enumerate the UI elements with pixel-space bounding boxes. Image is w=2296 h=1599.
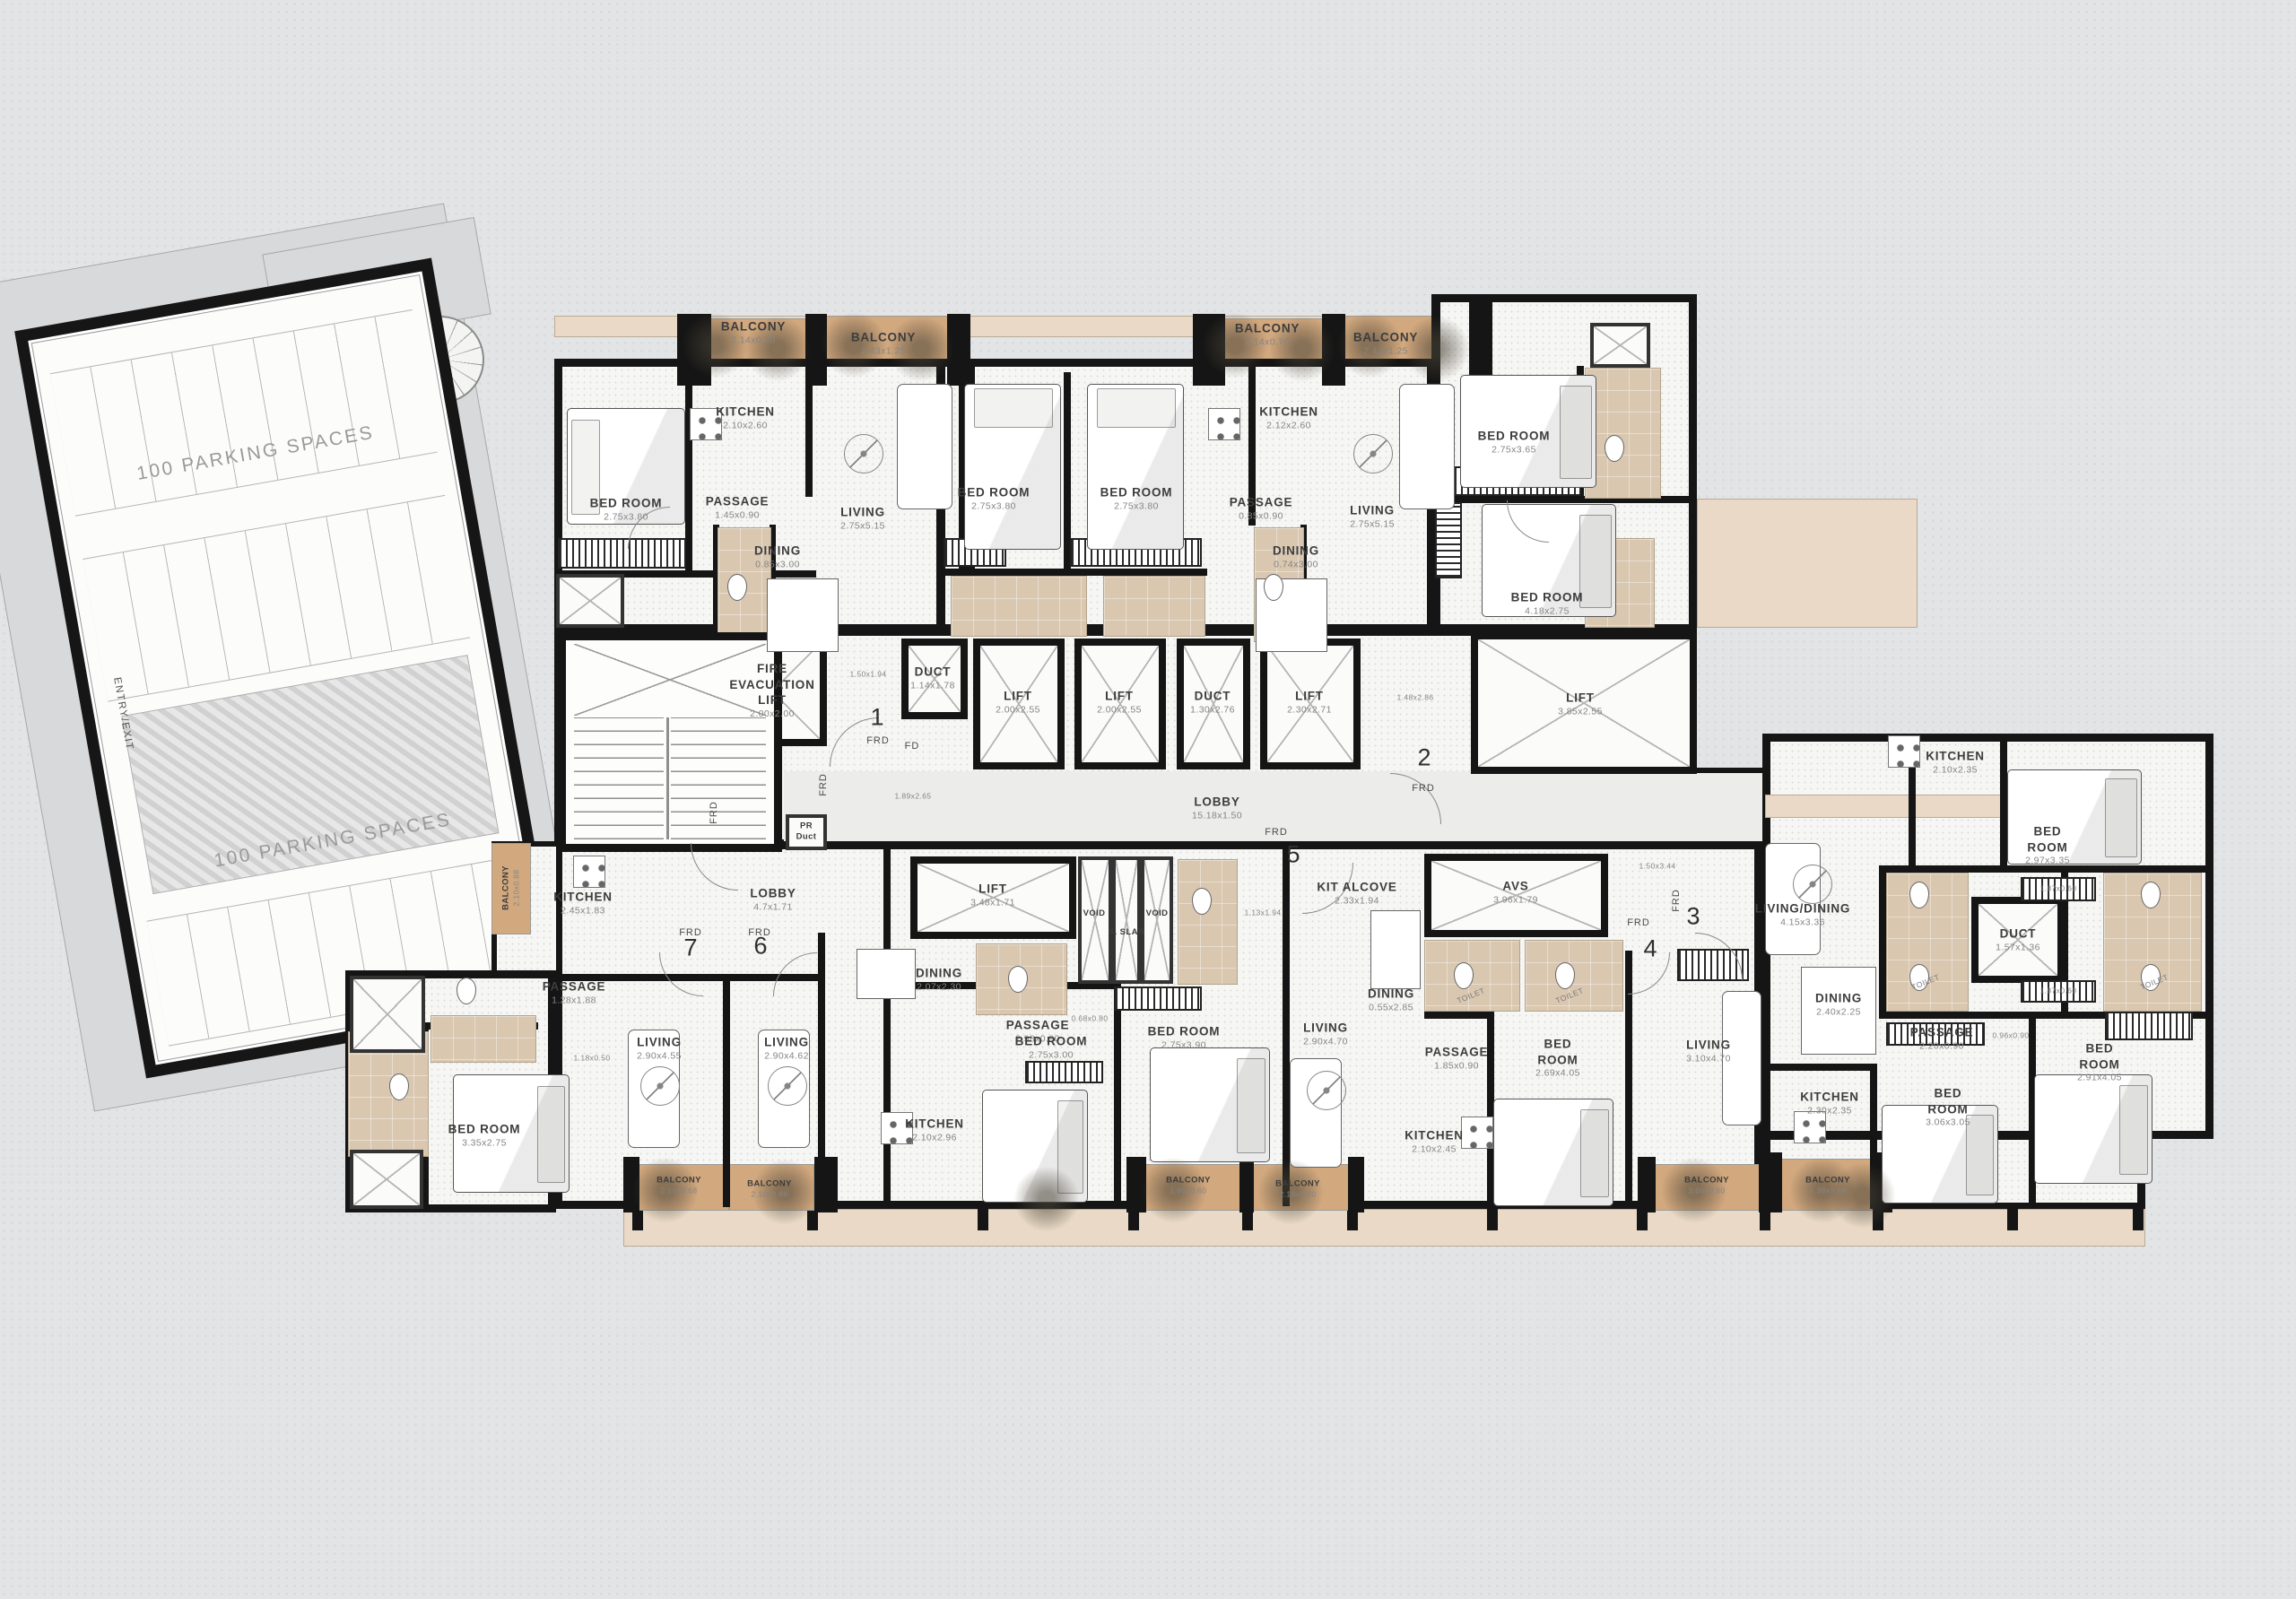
room-dims: 2.00x2.55	[996, 704, 1040, 717]
room-label: LIFT2.00x2.55	[996, 688, 1040, 716]
dining-table	[1370, 910, 1421, 989]
room-dims: 2.90x4.55	[637, 1050, 682, 1063]
ceiling-fan-icon	[1353, 434, 1393, 474]
room-label: BED ROOM2.69x4.05	[1526, 1037, 1590, 1081]
parking-stalls	[50, 309, 438, 517]
wall-pier	[1126, 1157, 1146, 1212]
room-dims: 1.87x0.60	[2040, 986, 2077, 995]
room-dims: 2.43x1.25	[851, 345, 916, 358]
room-label: LIVING2.90x4.62	[764, 1034, 809, 1062]
shower	[350, 1150, 423, 1209]
frd-label: FRD	[1627, 917, 1650, 928]
room-dims: 0.85x0.90	[1230, 510, 1293, 523]
wall	[883, 847, 891, 1206]
room-name: DINING	[1273, 543, 1319, 559]
room-name: BALCONY	[1684, 1175, 1729, 1186]
wall-pier	[1193, 314, 1225, 386]
room-dims: 3.96x1.79	[1493, 894, 1538, 907]
room-label: S. SLAB	[1109, 927, 1144, 938]
room-name: BALCONY	[1275, 1178, 1320, 1189]
stair-center-line	[666, 717, 669, 839]
frd-label: FRD	[1265, 827, 1288, 838]
room-name: BED ROOM	[1100, 484, 1173, 500]
room-dims: 3.48x1.71	[970, 897, 1015, 909]
bed	[2034, 1074, 2152, 1184]
room-dims: 2.10x0.88	[512, 865, 522, 910]
room-label: VOID	[1146, 908, 1169, 919]
room-label: LIFT2.30x2.71	[1287, 688, 1332, 716]
room-dims: 15.18x1.50	[1192, 810, 1242, 822]
room-name: BED ROOM	[448, 1121, 521, 1137]
room-name: LOBBY	[750, 885, 796, 901]
room-dims: 2.90x4.70	[1303, 1036, 1348, 1048]
room-name: BED ROOM	[1148, 1023, 1221, 1039]
wall	[944, 569, 1207, 576]
room-dims: 2.33x1.94	[1317, 895, 1396, 908]
dim-label: 1.50x1.94	[850, 669, 887, 679]
room-label: BALCONY1.38x0.68	[1805, 1175, 1850, 1195]
room-dims: 2.10x0.68	[657, 1186, 701, 1196]
room-name: BED ROOM	[1015, 1033, 1088, 1049]
room-name: BALCONY	[851, 329, 916, 345]
pr-duct-label: PRDuct	[796, 821, 817, 844]
room-name: DUCT	[910, 664, 955, 680]
wall	[1870, 1067, 1877, 1209]
window-tick	[1487, 1207, 1498, 1230]
wall	[2000, 737, 2007, 870]
wall	[1283, 847, 1290, 1206]
wall	[805, 362, 813, 497]
room-label: KITCHEN2.10x2.96	[905, 1116, 964, 1143]
room-name: BALCONY	[747, 1178, 792, 1189]
room-name: FIRE EVACUATION LIFT	[722, 661, 822, 708]
room-dims: 2.75x3.65	[1478, 444, 1551, 456]
room-name: PASSAGE	[706, 493, 770, 509]
room-name: DINING	[1368, 986, 1414, 1002]
room-label: DINING0.55x2.85	[1368, 986, 1414, 1013]
room-name: KITCHEN	[1926, 748, 1985, 764]
slab-shaft	[1112, 856, 1141, 984]
room-label: KITCHEN2.30x2.35	[1800, 1089, 1859, 1117]
room-dims: 2.07x2.30	[916, 981, 962, 994]
room-label: BALCONY2.14x0.70	[1235, 320, 1300, 348]
dim-label: 1.18x0.50	[574, 1053, 611, 1063]
wall	[1762, 1064, 1877, 1071]
wall-pier	[677, 314, 711, 386]
room-dims: 2.75x5.15	[1350, 518, 1395, 531]
room-dims: 1.57x1.36	[1996, 942, 2040, 954]
room-name: DINING	[916, 965, 962, 981]
bed	[1087, 384, 1184, 550]
room-dims: 2.14x0.70	[721, 335, 786, 347]
room-name: LIVING	[764, 1034, 809, 1050]
ceiling-fan-icon	[768, 1066, 807, 1106]
room-name: KIT ALCOVE	[1317, 879, 1396, 895]
room-label: BED ROOM3.06x3.05	[1916, 1086, 1980, 1130]
frd-label: FRD	[679, 927, 702, 938]
wardrobe	[1114, 986, 1202, 1011]
room-name: KITCHEN	[905, 1116, 964, 1132]
room-name: LIVING	[1686, 1037, 1731, 1053]
room-label: AVS3.96x1.79	[1493, 878, 1538, 906]
room-label: BALCONY3.08x0.60	[1684, 1175, 1729, 1195]
room-label: LIVING2.75x5.15	[1350, 502, 1395, 530]
room-name: AVS	[1493, 878, 1538, 894]
room-name: LIVING	[840, 504, 885, 520]
room-label: BALCONY1.95x0.60	[1166, 1175, 1211, 1195]
room-label: PASSAGE1.28x1.88	[543, 978, 606, 1006]
room-name: S. SLAB	[1109, 927, 1144, 938]
room-dims: 2.10x2.96	[905, 1132, 964, 1144]
stove-icon	[1208, 408, 1240, 440]
room-name: LIFT	[1097, 688, 1142, 704]
room-label: BALCONY2.43x1.25	[1353, 329, 1418, 357]
room-label: KITCHEN2.12x2.60	[1259, 404, 1318, 431]
fd-label: FD	[905, 741, 920, 752]
room-dims: 0.74x3.00	[1273, 559, 1319, 571]
room-label: BALCONY2.10x0.88	[747, 1178, 792, 1199]
room-label: LIVING3.10x4.70	[1686, 1037, 1731, 1065]
room-label: PASSAGE1.85x0.90	[1425, 1044, 1489, 1072]
room-dims: 2.10x2.45	[1405, 1143, 1464, 1156]
room-dims: 3.35x2.75	[448, 1137, 521, 1150]
room-label: BED ROOM3.35x2.75	[448, 1121, 521, 1149]
room-name: KITCHEN	[716, 404, 775, 420]
room-label: DINING0.85x3.00	[754, 543, 801, 570]
room-label: DINING2.07x2.30	[916, 965, 962, 993]
wall-pier	[1469, 296, 1492, 384]
room-dims: 2.12x2.60	[1259, 420, 1318, 432]
room-dims: 2.75x5.15	[840, 520, 885, 533]
room-dims: 2.00x2.00	[722, 708, 822, 721]
room-dims: 2.00x2.55	[1097, 704, 1142, 717]
wardrobe	[2105, 1012, 2193, 1040]
room-label: DUCT1.57x1.36	[1996, 926, 2040, 953]
room-label: LIFT3.85x2.55	[1558, 690, 1603, 717]
wall-pier	[623, 1157, 639, 1212]
room-name: LIFT	[1287, 688, 1332, 704]
room-label: DINING2.40x2.25	[1815, 990, 1862, 1018]
room-name: BED ROOM	[1511, 589, 1584, 605]
wardrobe	[1025, 1061, 1103, 1083]
room-name: LIVING	[1350, 502, 1395, 518]
wall-pier	[1239, 1157, 1254, 1212]
room-label: BED ROOM2.97x3.35	[2015, 824, 2080, 868]
room-dims: 2.10x2.35	[1926, 764, 1985, 777]
room-dims: 2.10x0.60	[1275, 1190, 1320, 1200]
room-label: KITCHEN2.10x2.35	[1926, 748, 1985, 776]
unit-number-3: 3	[1686, 903, 1700, 931]
room-label: PASSAGE1.45x0.90	[706, 493, 770, 521]
room-name: VOID	[1146, 908, 1169, 919]
frd-label: FRD	[1671, 889, 1682, 912]
room-dims: 1.45x0.90	[706, 509, 770, 522]
room-dims: 1.13x1.94	[1245, 908, 1282, 917]
room-label: LOBBY4.7x1.71	[750, 885, 796, 913]
room-name: BALCONY	[721, 318, 786, 335]
room-dims: 2.90x4.62	[764, 1050, 809, 1063]
stove-icon	[1888, 735, 1920, 768]
ceiling-fan-icon	[1307, 1071, 1346, 1110]
room-label: DUCT1.30x2.76	[1190, 688, 1235, 716]
room-name: PASSAGE	[1425, 1044, 1489, 1060]
room-dims: 2.69x4.05	[1526, 1068, 1590, 1081]
ceiling-fan-icon	[640, 1066, 680, 1106]
room-label: DUCT1.14x1.78	[910, 664, 955, 691]
room-name: DUCT	[1190, 688, 1235, 704]
room-name: BALCONY	[1166, 1175, 1211, 1186]
room-dims: 2.40x2.25	[1815, 1006, 1862, 1019]
bed	[964, 384, 1061, 550]
window-tick	[2133, 1207, 2144, 1230]
room-dims: 1.50x3.44	[1639, 861, 1676, 871]
room-name: BALCONY	[657, 1175, 701, 1186]
room-name: BED ROOM	[2067, 1041, 2132, 1073]
room-label: KIT ALCOVE2.33x1.94	[1317, 879, 1396, 907]
room-name: BED ROOM	[958, 484, 1031, 500]
room-label: FIRE EVACUATION LIFT2.00x2.00	[722, 661, 822, 720]
bathroom	[430, 1015, 536, 1063]
room-label: BALCONY2.10x0.60	[1275, 1178, 1320, 1199]
room-name: BALCONY	[500, 865, 511, 910]
wall	[685, 362, 692, 574]
pr-duct-line2: Duct	[796, 832, 817, 843]
room-dims: 2.91x4.05	[2067, 1073, 2132, 1085]
shower	[350, 976, 425, 1053]
void-shaft	[1078, 856, 1112, 984]
room-label: BED ROOM2.75x3.80	[1100, 484, 1173, 512]
room-label: KITCHEN2.10x2.45	[1405, 1127, 1464, 1155]
room-name: LIFT	[970, 881, 1015, 897]
frd-label: FRD	[866, 735, 890, 746]
dim-label: 0.68x0.80	[1072, 1013, 1109, 1023]
room-label: BED ROOM2.75x3.00	[1015, 1033, 1088, 1061]
room-name: BED ROOM	[590, 495, 663, 511]
room-dims: 3.10x4.70	[1686, 1053, 1731, 1065]
sofa	[897, 384, 952, 509]
room-dims: 0.96x0.90	[1993, 1030, 2030, 1040]
room-dims: 1.89x2.65	[895, 791, 932, 801]
terrace-strip	[623, 1209, 2145, 1247]
room-label: BALCONY2.43x1.25	[851, 329, 916, 357]
dim-label: 1.48x2.86	[1397, 692, 1434, 702]
room-label: BALCONY2.10x0.68	[657, 1175, 701, 1195]
wardrobe	[1435, 502, 1462, 578]
wall-pier	[1759, 1152, 1782, 1212]
room-dims: 4.18x2.75	[1511, 605, 1584, 618]
dim-label: 1.87x0.60	[2040, 986, 2077, 995]
room-name: DUCT	[1996, 926, 2040, 942]
bed	[1150, 1047, 1270, 1162]
room-label: DINING0.74x3.00	[1273, 543, 1319, 570]
room-name: KITCHEN	[1259, 404, 1318, 420]
room-dims: 1.14x1.78	[910, 680, 955, 692]
room-dims: 2.45x1.83	[553, 905, 613, 917]
room-label: LIFT3.48x1.71	[970, 881, 1015, 908]
room-name: BALCONY	[1353, 329, 1418, 345]
bed	[1493, 1099, 1613, 1206]
unit-number-5: 5	[1286, 841, 1300, 869]
room-label: BED ROOM2.75x3.90	[1148, 1023, 1221, 1051]
room-label: BED ROOM2.91x4.05	[2067, 1041, 2132, 1085]
ceiling-fan-icon	[844, 434, 883, 474]
room-name: BED ROOM	[2015, 824, 2080, 856]
east-deck	[1697, 499, 1918, 628]
room-name: LIVING	[637, 1034, 682, 1050]
shower	[556, 574, 624, 628]
room-dims: 1.95x0.60	[1166, 1186, 1211, 1196]
frd-label: FRD	[818, 773, 829, 796]
room-label: LIVING2.90x4.70	[1303, 1020, 1348, 1047]
room-dims: 3.85x2.55	[1558, 706, 1603, 718]
room-label: LIVING2.75x5.15	[840, 504, 885, 532]
room-name: VOID	[1083, 908, 1106, 919]
room-dims: 2.43x1.25	[1353, 345, 1418, 358]
room-label: KITCHEN2.10x2.60	[716, 404, 775, 431]
room-name: LIFT	[1558, 690, 1603, 706]
window-tick	[978, 1207, 988, 1230]
room-dims: 2.75x3.80	[590, 511, 663, 524]
room-label: BED ROOM4.18x2.75	[1511, 589, 1584, 617]
room-name: KITCHEN	[1800, 1089, 1859, 1105]
wall-pier	[1322, 314, 1345, 386]
room-name: LIVING/DINING	[1755, 900, 1850, 917]
room-dims: 1.28x1.88	[543, 995, 606, 1007]
room-label: BED ROOM2.75x3.65	[1478, 428, 1551, 456]
room-label: KITCHEN2.45x1.83	[553, 889, 613, 917]
room-dims: 4.15x3.36	[1755, 917, 1850, 929]
unit-number-2: 2	[1417, 744, 1431, 772]
room-name: BED ROOM	[1526, 1037, 1590, 1068]
room-dims: 2.30x2.71	[1287, 704, 1332, 717]
wall-pier	[1348, 1157, 1364, 1212]
room-label: LIVING2.90x4.55	[637, 1034, 682, 1062]
room-name: KITCHEN	[1405, 1127, 1464, 1143]
sofa	[1399, 384, 1455, 509]
unit-number-4: 4	[1643, 935, 1657, 963]
parking-cars	[121, 655, 499, 894]
bathroom	[1103, 576, 1205, 637]
room-label: LOBBY15.18x1.50	[1192, 794, 1242, 821]
room-dims: 1.50x1.94	[850, 669, 887, 679]
room-name: LIFT	[996, 688, 1040, 704]
room-dims: 2.30x2.35	[1800, 1105, 1859, 1117]
room-dims: 1.38x0.68	[1805, 1186, 1850, 1196]
room-label: VOID	[1083, 908, 1106, 919]
dining-table	[767, 578, 839, 652]
room-dims: 1.18x0.50	[574, 1053, 611, 1063]
stair-treads	[574, 717, 664, 839]
room-label: PASSAGE2.20x0.90	[1910, 1024, 1974, 1052]
room-name: PASSAGE	[543, 978, 606, 995]
room-name: PASSAGE	[1006, 1017, 1070, 1033]
frd-label: FRD	[709, 801, 719, 824]
room-dims: 0.55x2.85	[1368, 1002, 1414, 1014]
room-label: BALCONY2.14x0.70	[721, 318, 786, 346]
wall	[1424, 1012, 1494, 1019]
room-dims: 2.75x3.80	[958, 500, 1031, 513]
room-label: BED ROOM2.75x3.80	[958, 484, 1031, 512]
dim-label: 1.13x1.94	[1245, 908, 1282, 917]
pr-duct-line1: PR	[796, 821, 817, 832]
room-dims: 2.75x3.00	[1015, 1049, 1088, 1062]
wall-pier	[947, 314, 970, 386]
bathroom	[1178, 859, 1238, 985]
room-dims: 2.10x0.88	[747, 1190, 792, 1200]
room-name: LIVING	[1303, 1020, 1348, 1036]
room-dims: 2.97x3.35	[2015, 856, 2080, 868]
room-name: BED ROOM	[1478, 428, 1551, 444]
floor-plan-canvas: 100 PARKING SPACES 100 PARKING SPACES EN…	[0, 0, 2296, 1599]
room-name: DINING	[754, 543, 801, 559]
room-label: BED ROOM2.75x3.80	[590, 495, 663, 523]
room-dims: 1.48x2.86	[1397, 692, 1434, 702]
wall-pier	[1638, 1157, 1656, 1212]
bed	[982, 1090, 1088, 1203]
room-label: BALCONY2.10x0.88	[500, 865, 521, 910]
room-dims: 1.85x0.90	[1425, 1060, 1489, 1073]
room-dims: 2.75x3.90	[1148, 1039, 1221, 1052]
room-name: LOBBY	[1192, 794, 1242, 810]
unit-number-7: 7	[683, 934, 697, 962]
room-dims: 1.87x0.60	[2040, 883, 2077, 893]
unit-number-1: 1	[870, 704, 883, 732]
room-name: DINING	[1815, 990, 1862, 1006]
window-tick	[2007, 1207, 2018, 1230]
wall	[1879, 865, 1886, 1018]
stove-icon	[573, 856, 605, 888]
room-dims: 0.68x0.80	[1072, 1013, 1109, 1023]
dim-label: 1.87x0.60	[2040, 883, 2077, 893]
room-dims: 2.20x0.90	[1910, 1040, 1974, 1053]
room-name: PASSAGE	[1910, 1024, 1974, 1040]
room-dims: 1.30x2.76	[1190, 704, 1235, 717]
frd-label: FRD	[1412, 783, 1435, 794]
room-name: BALCONY	[1805, 1175, 1850, 1186]
room-dims: 4.7x1.71	[750, 901, 796, 914]
room-name: BALCONY	[1235, 320, 1300, 336]
void-shaft	[1141, 856, 1173, 984]
shower	[1590, 323, 1650, 368]
wall	[723, 978, 730, 1207]
dim-label: 1.89x2.65	[895, 791, 932, 801]
room-dims: 2.14x0.70	[1235, 336, 1300, 349]
room-dims: 2.10x2.60	[716, 420, 775, 432]
wall	[1114, 982, 1121, 1206]
room-name: PASSAGE	[1230, 494, 1293, 510]
room-label: PASSAGE0.85x0.90	[1230, 494, 1293, 522]
room-name: KITCHEN	[553, 889, 613, 905]
room-dims: 3.06x3.05	[1916, 1117, 1980, 1130]
room-label: LIFT2.00x2.55	[1097, 688, 1142, 716]
room-dims: 0.85x3.00	[754, 559, 801, 571]
room-dims: 2.75x3.80	[1100, 500, 1173, 513]
dim-label: 1.50x3.44	[1639, 861, 1676, 871]
room-name: BED ROOM	[1916, 1086, 1980, 1117]
room-label: LIVING/DINING4.15x3.36	[1755, 900, 1850, 928]
dining-table	[857, 949, 916, 999]
stove-icon	[1461, 1117, 1493, 1149]
frd-label: FRD	[748, 927, 771, 938]
dim-label: 0.96x0.90	[1993, 1030, 2030, 1040]
bathroom	[951, 576, 1087, 637]
ceiling-fan-icon	[1793, 865, 1832, 904]
room-dims: 3.08x0.60	[1684, 1186, 1729, 1196]
